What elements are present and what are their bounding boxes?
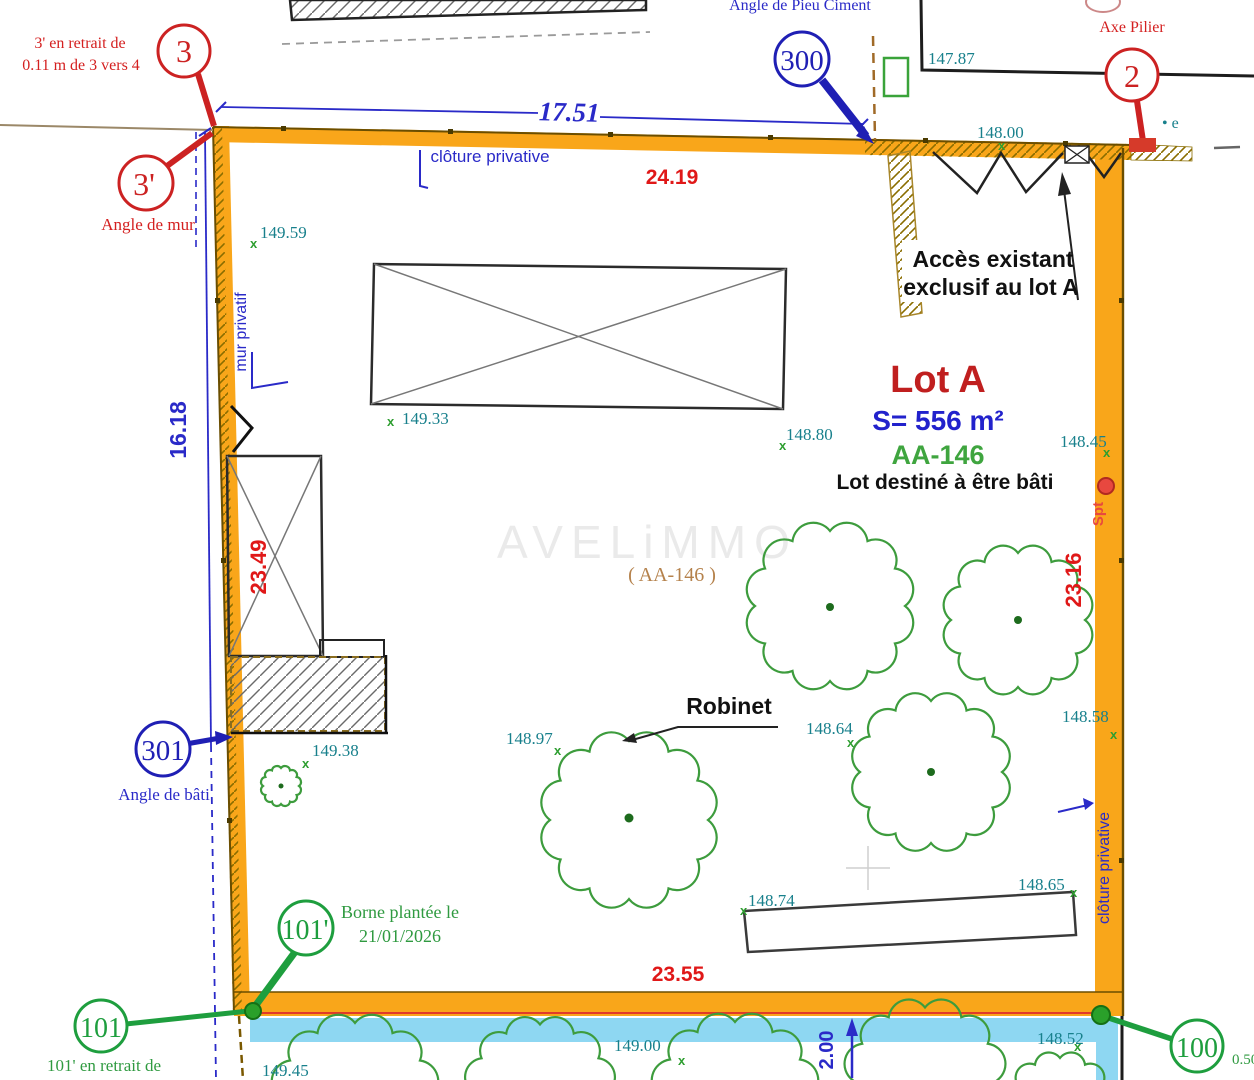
lot-surface: S= 556 m² (872, 405, 1004, 436)
small-annex (320, 640, 384, 657)
tree-trunk-dots (279, 603, 1023, 823)
marker-100-label: 100 (1176, 1033, 1218, 1064)
elevation-label: 148.80 (786, 425, 833, 444)
note-angle-mur: Angle de mur (101, 215, 195, 234)
lot-parcel-ref: ( AA-146 ) (628, 564, 716, 586)
dim-top-total: 17.51 (538, 96, 600, 128)
boundary-below-corner-dash (239, 1016, 243, 1080)
fence-mur-privatif: mur privatif (233, 292, 250, 372)
marker-101-label: 101 (80, 1013, 122, 1044)
dim-bottom-red: 23.55 (652, 963, 705, 986)
borne-dot-101 (245, 1003, 261, 1019)
elevation-label: 148.45 (1060, 432, 1107, 451)
marker-101prime-label: 101' (281, 915, 328, 946)
watermark-text: AVELiMMO (497, 516, 798, 568)
point-marker: x (1103, 445, 1111, 460)
point-marker: x (387, 414, 395, 429)
lot-parcel: AA-146 (891, 440, 984, 470)
note-retrait3-2: 0.11 m de 3 vers 4 (22, 57, 140, 74)
note-borne-1: Borne plantée le (341, 902, 459, 922)
access-axis-dash (873, 36, 875, 140)
lot-destination: Lot destiné à être bâti (836, 471, 1053, 494)
elevation-label: 149.38 (312, 741, 359, 760)
elevation-label: 148.65 (1018, 875, 1065, 894)
point-marker: x (678, 1053, 686, 1068)
note-retrait101: 101' en retrait de (47, 1056, 161, 1075)
lot-name: Lot A (890, 359, 986, 401)
elevation-label: 149.45 (262, 1061, 309, 1080)
note-acces-2: exclusif au lot A (903, 274, 1079, 300)
note-angle-pieu: Angle de Pieu Ciment (729, 0, 871, 14)
point-marker: x (554, 743, 562, 758)
point-marker: x (847, 735, 855, 750)
west-boundary-line (0, 125, 213, 130)
survey-plan-page: AVELiMMO (0, 0, 1254, 1080)
dim-right-red: 23.16 (1061, 552, 1086, 607)
right-blue-mark (1058, 798, 1094, 812)
east-dash-mark (1214, 147, 1240, 148)
note-angle-bati: Angle de bâti (118, 785, 210, 804)
marker-300-label: 300 (780, 45, 824, 77)
north-dashed-line (282, 32, 650, 44)
note-point-e: • e (1162, 115, 1179, 132)
note-acces-1: Accès existant (912, 246, 1073, 272)
pilier-circle-cut (1086, 0, 1120, 12)
spt-dot (1098, 478, 1114, 494)
marker-2: 2 (1106, 49, 1158, 152)
marker-101: 101 (75, 1000, 249, 1052)
main-crossed-building (371, 264, 786, 409)
elevation-label: 149.00 (614, 1036, 661, 1055)
green-post-rect (884, 58, 908, 96)
elevation-label: 147.87 (928, 49, 975, 68)
elevation-label: 148.97 (506, 729, 553, 748)
point-marker: x (998, 138, 1006, 153)
point-marker: x (1110, 727, 1118, 742)
marker-3prime-label: 3' (133, 166, 155, 202)
marker-2-label: 2 (1124, 58, 1140, 94)
cloture-bracket (420, 150, 428, 188)
site-plan-canvas: AVELiMMO (0, 0, 1254, 1080)
robinet-leader (622, 727, 778, 743)
note-retrait3-1: 3' en retrait de (34, 35, 125, 52)
marker-300: 300 (775, 32, 874, 144)
north-hatched-building (290, 0, 646, 20)
fence-cloture-right: clôture privative (1096, 812, 1113, 924)
mur-bracket (252, 352, 288, 388)
fence-cloture-top: clôture privative (430, 147, 549, 166)
note-robinet: Robinet (686, 693, 772, 719)
borne-dot-100 (1092, 1006, 1110, 1024)
marker-301: 301 (136, 722, 233, 776)
point-marker: x (779, 438, 787, 453)
dim-left-red: 23.49 (246, 539, 271, 594)
point-marker: x (302, 756, 310, 771)
dim-access-depth: 2.00 (816, 1031, 838, 1070)
dim-top-red: 24.19 (646, 166, 699, 189)
elevation-label: 148.74 (748, 891, 795, 910)
point-marker: x (250, 236, 258, 251)
fence-x-box (1065, 146, 1089, 163)
note-offset-100: 0.50 (1232, 1052, 1254, 1068)
note-spt: Spt (1090, 502, 1107, 526)
point-marker: x (1070, 885, 1078, 900)
note-axe-pilier: Axe Pilier (1099, 19, 1165, 36)
marker-301-label: 301 (141, 735, 185, 767)
marker-3: 3 (158, 25, 214, 126)
elevation-label: 149.33 (402, 409, 449, 428)
southwest-hatched-building (231, 655, 388, 733)
buildings (227, 0, 786, 733)
note-borne-2: 21/01/2026 (359, 926, 441, 946)
dim-16-18-line (196, 128, 216, 1080)
marker-3-label: 3 (176, 33, 192, 69)
point-marker: x (740, 903, 748, 918)
elevation-label: 149.59 (260, 223, 307, 242)
west-crossed-building (227, 456, 323, 656)
marker-3prime: 3' (119, 133, 212, 210)
blue-strip-vertical (1096, 1018, 1118, 1080)
marker-2-target (1129, 138, 1156, 152)
faint-cross (846, 846, 890, 890)
elevation-label: 148.58 (1062, 707, 1109, 726)
point-marker: x (1074, 1039, 1082, 1054)
dim-left-total: 16.18 (165, 401, 191, 459)
